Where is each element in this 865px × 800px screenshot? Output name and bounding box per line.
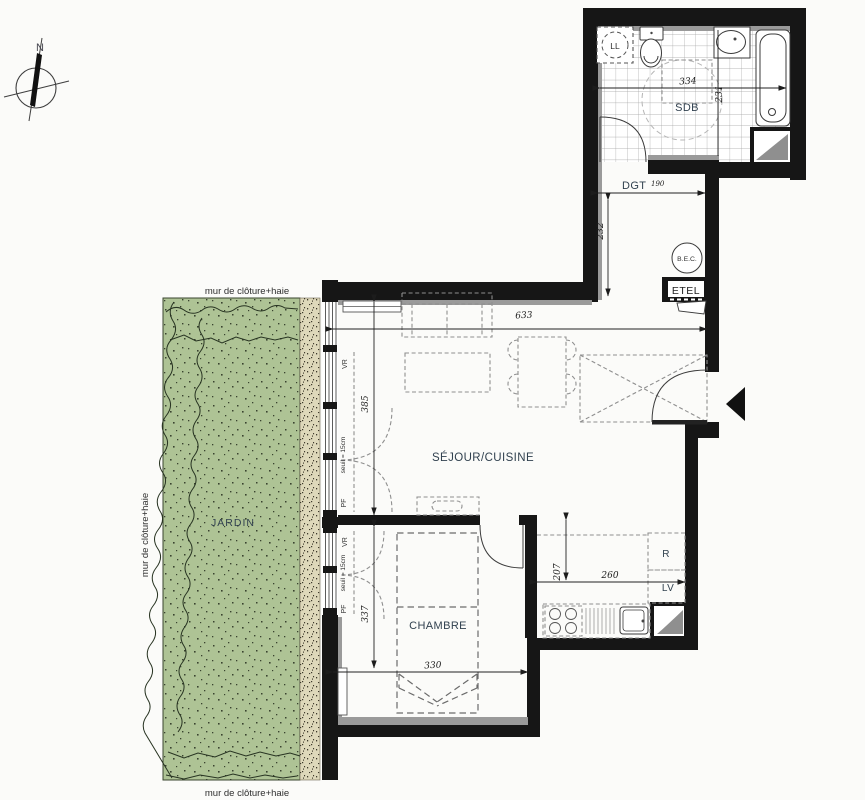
hallway-width-sup: 190 [651, 180, 665, 188]
dishwasher-label: LV [662, 583, 674, 594]
bedroom-pf-label: PF [341, 605, 348, 614]
bedroom-window: VR seuil = 15cm PF [322, 526, 384, 619]
duct-chase-bathroom [750, 127, 795, 167]
entrance-closet-reservation [580, 355, 707, 422]
bathtub [756, 30, 790, 126]
console-table [417, 497, 479, 515]
garden-wall-label-bottom: mur de clôture+haie [205, 788, 289, 799]
floor-plan-svg: N JARDIN mur de clôture+haie mur de clôt… [0, 0, 865, 800]
fridge: R [648, 533, 685, 570]
drainer-lines [586, 608, 614, 634]
kitchen-width-dim: 260 [600, 571, 618, 581]
garden-speckle [163, 298, 300, 780]
compass-needle [30, 53, 42, 107]
coffee-table [405, 353, 490, 392]
bathroom-sink [714, 27, 750, 58]
etel-box: ETEL [662, 277, 708, 314]
living-pf-label: PF [341, 499, 348, 508]
floor-plan: N JARDIN mur de clôture+haie mur de clôt… [0, 0, 865, 800]
living-window: VR seuil = 15cm PF [322, 302, 392, 517]
french-door-swing-1 [340, 408, 392, 460]
living-width-dim: 633 [515, 311, 533, 322]
compass-north-label: N [36, 42, 44, 54]
gravel-speckle [300, 298, 320, 780]
etel-flap [677, 301, 706, 314]
hallway-depth-dim: 232 [596, 222, 606, 240]
dining-table [508, 337, 576, 407]
garden: JARDIN mur de clôture+haie mur de clôtur… [140, 286, 320, 799]
duct-chase-kitchen [650, 602, 690, 642]
entrance-door [652, 370, 707, 425]
bathroom-depth-dim: 231 [715, 85, 725, 103]
garden-label: JARDIN [211, 517, 255, 529]
toilet [640, 27, 663, 67]
garden-wall-label-top: mur de clôture+haie [205, 286, 289, 297]
bedroom-window-dim: 337 [361, 605, 371, 622]
living-vr-label: VR [342, 359, 349, 369]
washer-label: LL [610, 41, 620, 51]
washing-machine: LL [597, 27, 633, 63]
bedroom-seuil-label: seuil = 15cm [340, 555, 347, 592]
kitchen-counter [543, 604, 650, 638]
water-heater-label: B.E.C. [677, 256, 697, 263]
bedroom-label: CHAMBRE [409, 620, 467, 632]
compass-rose: N [4, 38, 69, 121]
dishwasher: LV [648, 570, 685, 603]
etel-label: ETEL [672, 285, 700, 297]
bedroom: VR seuil = 15cm PF CHAMBRE 330 337 [322, 525, 528, 715]
entrance-arrow [726, 387, 745, 421]
living-seuil-label: seuil = 15cm [340, 437, 347, 474]
bathroom-width-dim: 334 [679, 77, 697, 88]
fridge-label: R [662, 549, 670, 560]
living-label: SÉJOUR/CUISINE [432, 451, 534, 464]
living-room: VR seuil = 15cm PF [322, 293, 745, 517]
bedroom-door-swing [480, 525, 523, 568]
bedroom-width-dim: 330 [424, 661, 442, 672]
bedroom-vr-label: VR [342, 537, 349, 547]
garden-wall-label-left: mur de clôture+haie [140, 493, 151, 577]
hallway: DGT 190 232 B.E.C. ETEL [596, 180, 708, 314]
kitchen-depth-dim: 207 [553, 563, 563, 581]
bedroom-radiator [338, 668, 347, 715]
bathroom-label: SDB [675, 102, 699, 114]
hallway-label: DGT [622, 180, 646, 192]
living-window-dim: 385 [361, 395, 371, 412]
